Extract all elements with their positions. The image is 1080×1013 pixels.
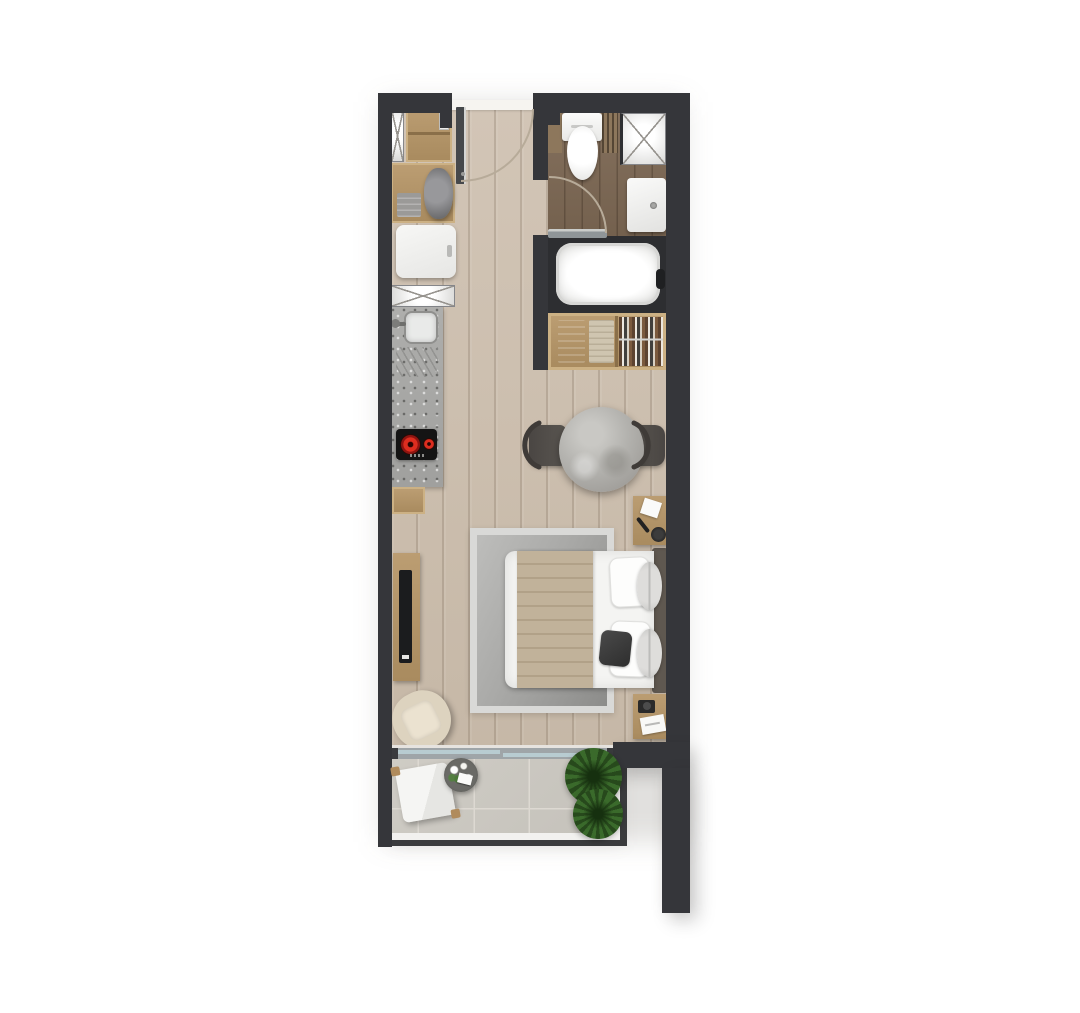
exterior-wall-corner [613, 742, 690, 768]
notepad [640, 498, 662, 519]
dining-table [559, 407, 644, 492]
burner-small [423, 438, 435, 450]
burner-large [400, 434, 421, 455]
bolster-pillow-bottom [637, 629, 662, 677]
balcony-edge-band-bottom [392, 833, 613, 840]
closet-shelf-divider [408, 132, 450, 135]
base-cabinet [392, 487, 425, 514]
ventilation-shaft-bathroom [620, 113, 666, 165]
refrigerator [396, 225, 456, 278]
wardrobe-divider [615, 316, 618, 367]
accent-pillow [598, 629, 632, 667]
balcony-railing-bottom [390, 840, 627, 846]
wall-left [378, 93, 392, 847]
book [640, 714, 667, 735]
hanging-clothes [619, 317, 663, 366]
nightstand-bottom [633, 694, 668, 739]
glass-pane-left [398, 750, 500, 754]
side-table-with-flowers [444, 758, 478, 792]
camera [638, 700, 655, 713]
kitchen-faucet [393, 322, 406, 326]
towels [397, 193, 421, 217]
cooktop [396, 429, 437, 460]
cooktop-controls [410, 454, 424, 457]
floor-plan [0, 0, 1080, 1013]
folded-clothes-beige [589, 320, 614, 363]
entry-door-leaf [456, 107, 466, 184]
bathroom-door-leaf [548, 229, 607, 238]
exterior-wall-extension [662, 768, 690, 913]
throw-blanket [517, 551, 593, 688]
ventilation-shaft-entry [391, 110, 404, 162]
bolster-pillow-top [637, 562, 662, 610]
door-frame-cap-left [392, 748, 398, 759]
wall-right [666, 93, 690, 743]
ventilation-shaft-kitchen [391, 285, 455, 307]
kitchen-sink [404, 311, 438, 344]
wardrobe [548, 313, 666, 370]
bathroom-partition-upper [533, 113, 548, 180]
table-lamp [651, 527, 666, 542]
laundry-counter [391, 163, 455, 223]
television [399, 570, 412, 663]
nightstand-top [633, 496, 668, 545]
bathroom-shelf-right [602, 113, 618, 153]
bathroom-partition-lower [533, 235, 548, 370]
entry-door-jamb-left [440, 113, 452, 128]
pen [636, 517, 650, 534]
washbasin [627, 178, 666, 232]
drainboard-grooves [396, 347, 438, 377]
bathtub-alcove [548, 236, 666, 313]
bathtub-faucet [656, 269, 665, 289]
folded-clothes-gray [558, 320, 585, 363]
laundry-basin [424, 168, 453, 219]
bathtub [556, 243, 660, 305]
